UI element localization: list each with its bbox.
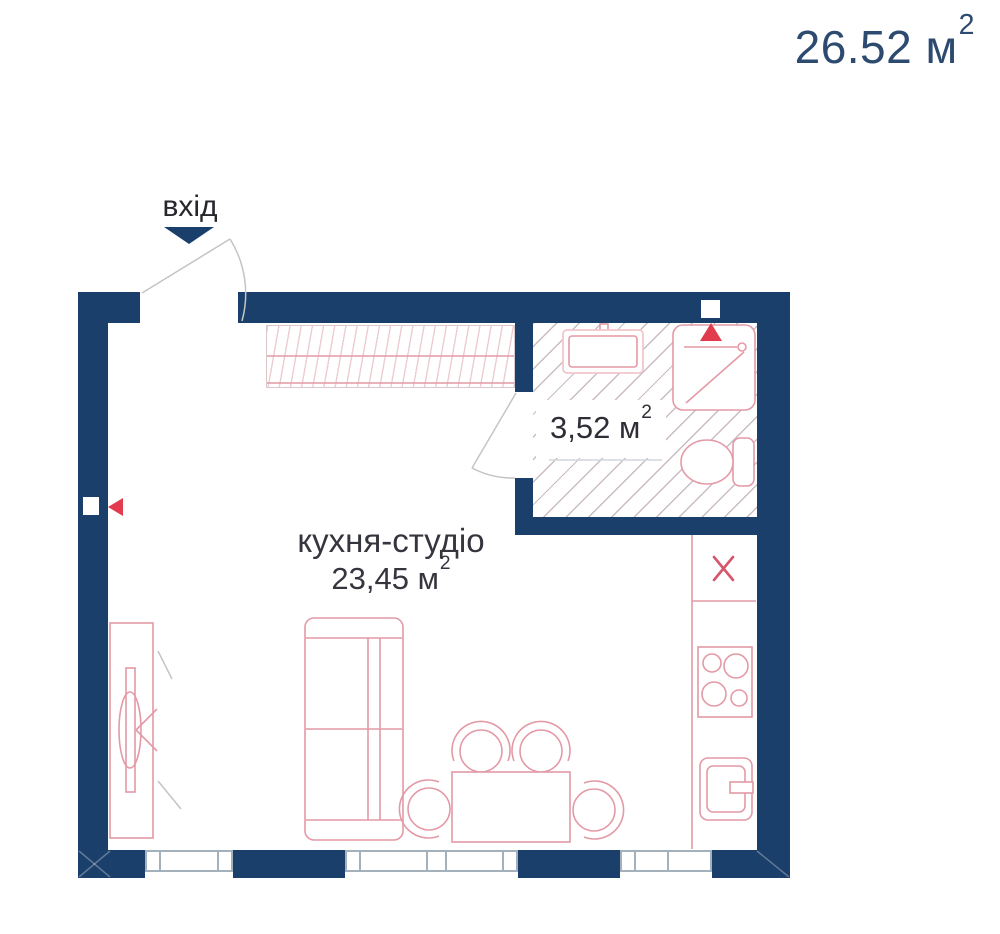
wall-bathroom-vertical-upper [515, 322, 533, 392]
window-center [345, 851, 518, 871]
tv-unit [110, 623, 181, 838]
wardrobe [266, 325, 515, 388]
wall-bottom-segment-1 [233, 850, 345, 878]
wall-bottom-corner-right [712, 850, 790, 878]
room-name-label: кухня-студіо [251, 522, 531, 560]
entrance-door [142, 239, 246, 321]
x-marker-icon [714, 557, 733, 580]
vent-arrow-left-icon [108, 498, 123, 516]
wall-right [757, 292, 790, 878]
window-right [620, 851, 712, 871]
dining-set [399, 721, 623, 842]
bathroom-area-label: 3,52 м2 [536, 410, 666, 446]
wall-vent-square-left [83, 497, 99, 515]
corner-seams [79, 851, 789, 877]
total-area-title: 26.52 м2 [795, 20, 975, 74]
wall-bottom-corner-left [78, 850, 145, 878]
wall-bathroom-horizontal [515, 517, 757, 535]
entrance-arrow-icon [164, 227, 214, 244]
dining-table [452, 772, 570, 842]
sofa [305, 618, 403, 840]
wall-left [78, 292, 108, 878]
room-area-label: 23,45 м2 [251, 561, 531, 597]
chair [460, 730, 502, 772]
wall-vent-square-top [701, 300, 720, 318]
chair [573, 789, 615, 831]
vent-arrow-top-icon [700, 323, 722, 341]
chair [408, 788, 450, 830]
kitchen-counter [692, 535, 756, 849]
tv-screen [126, 668, 135, 792]
cooktop [698, 647, 752, 717]
bathroom-door [472, 393, 516, 478]
kitchen-sink [700, 758, 753, 820]
total-area-value: 26.52 м [795, 21, 958, 73]
floor-plan-canvas: 26.52 м2 вхід [0, 0, 1000, 934]
plan-linework [0, 0, 1000, 934]
window-left [145, 851, 233, 871]
total-area-sup: 2 [959, 9, 975, 41]
chair [520, 730, 562, 772]
wall-bottom-segment-2 [518, 850, 620, 878]
entrance-label: вхід [147, 190, 233, 224]
